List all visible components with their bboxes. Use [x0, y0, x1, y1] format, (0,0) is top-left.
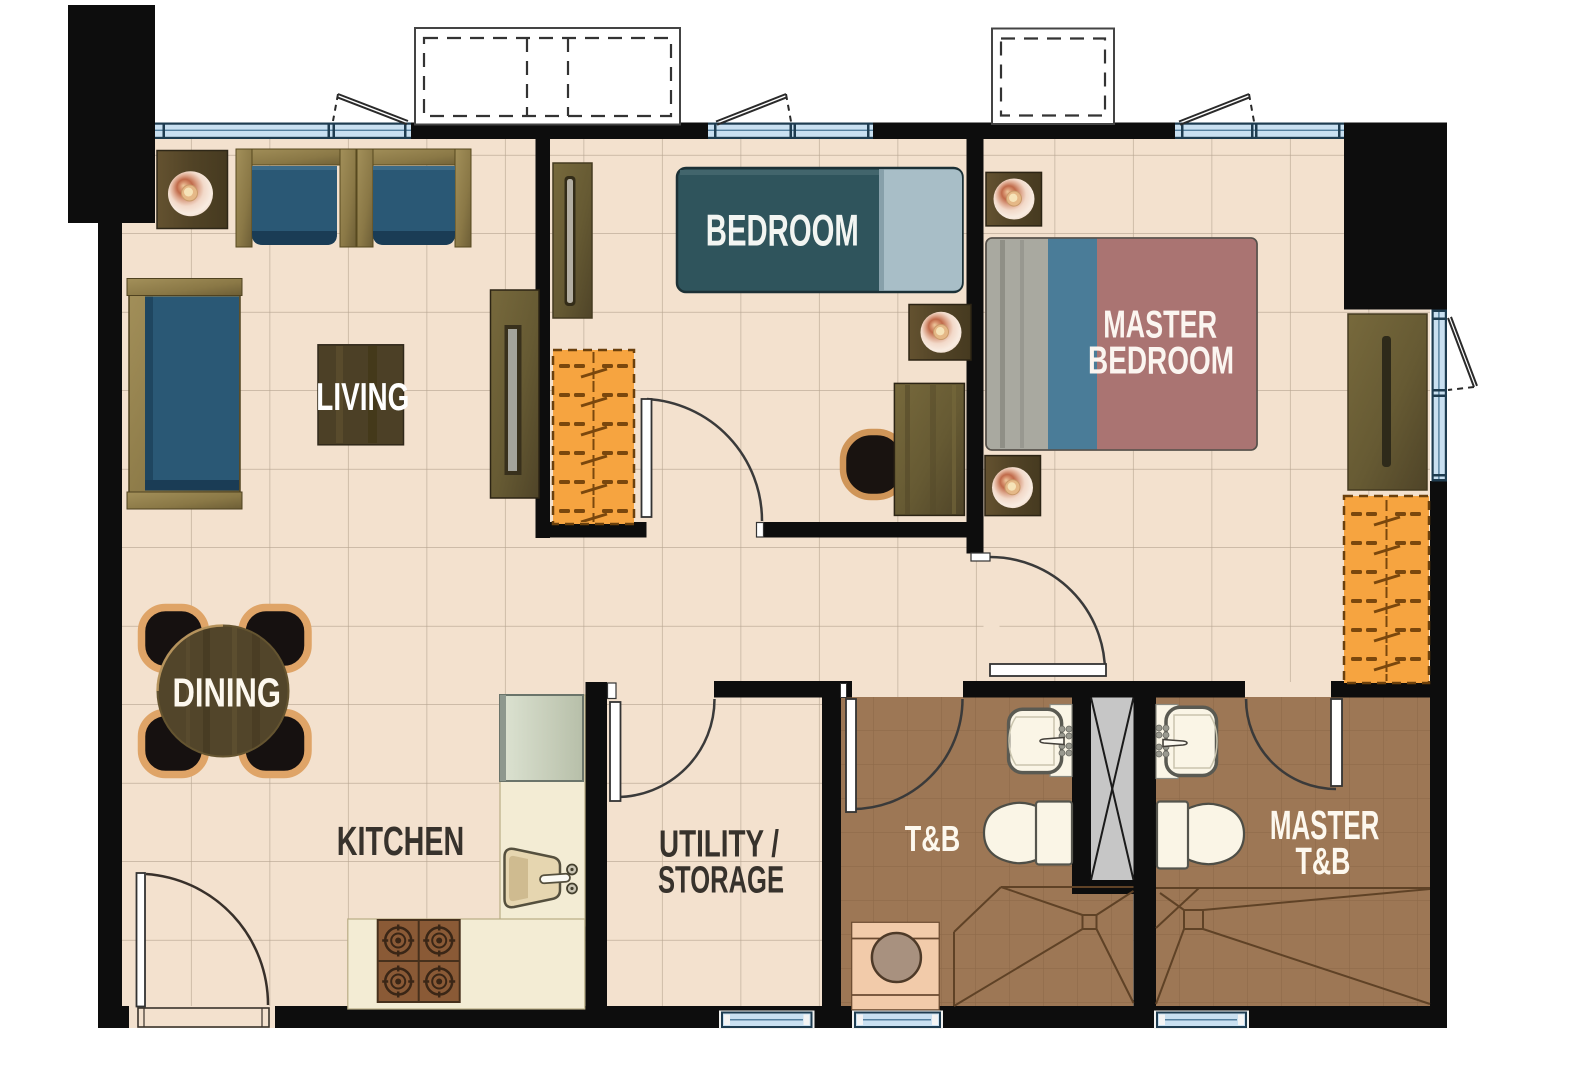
svg-text:STORAGE: STORAGE	[658, 860, 784, 902]
svg-text:LIVING: LIVING	[316, 376, 409, 419]
svg-text:T&B: T&B	[905, 818, 961, 859]
svg-text:BEDROOM: BEDROOM	[706, 207, 859, 256]
svg-text:DINING: DINING	[172, 669, 281, 715]
svg-text:BEDROOM: BEDROOM	[1088, 340, 1234, 383]
svg-text:T&B: T&B	[1296, 841, 1351, 883]
svg-text:KITCHEN: KITCHEN	[337, 818, 465, 864]
